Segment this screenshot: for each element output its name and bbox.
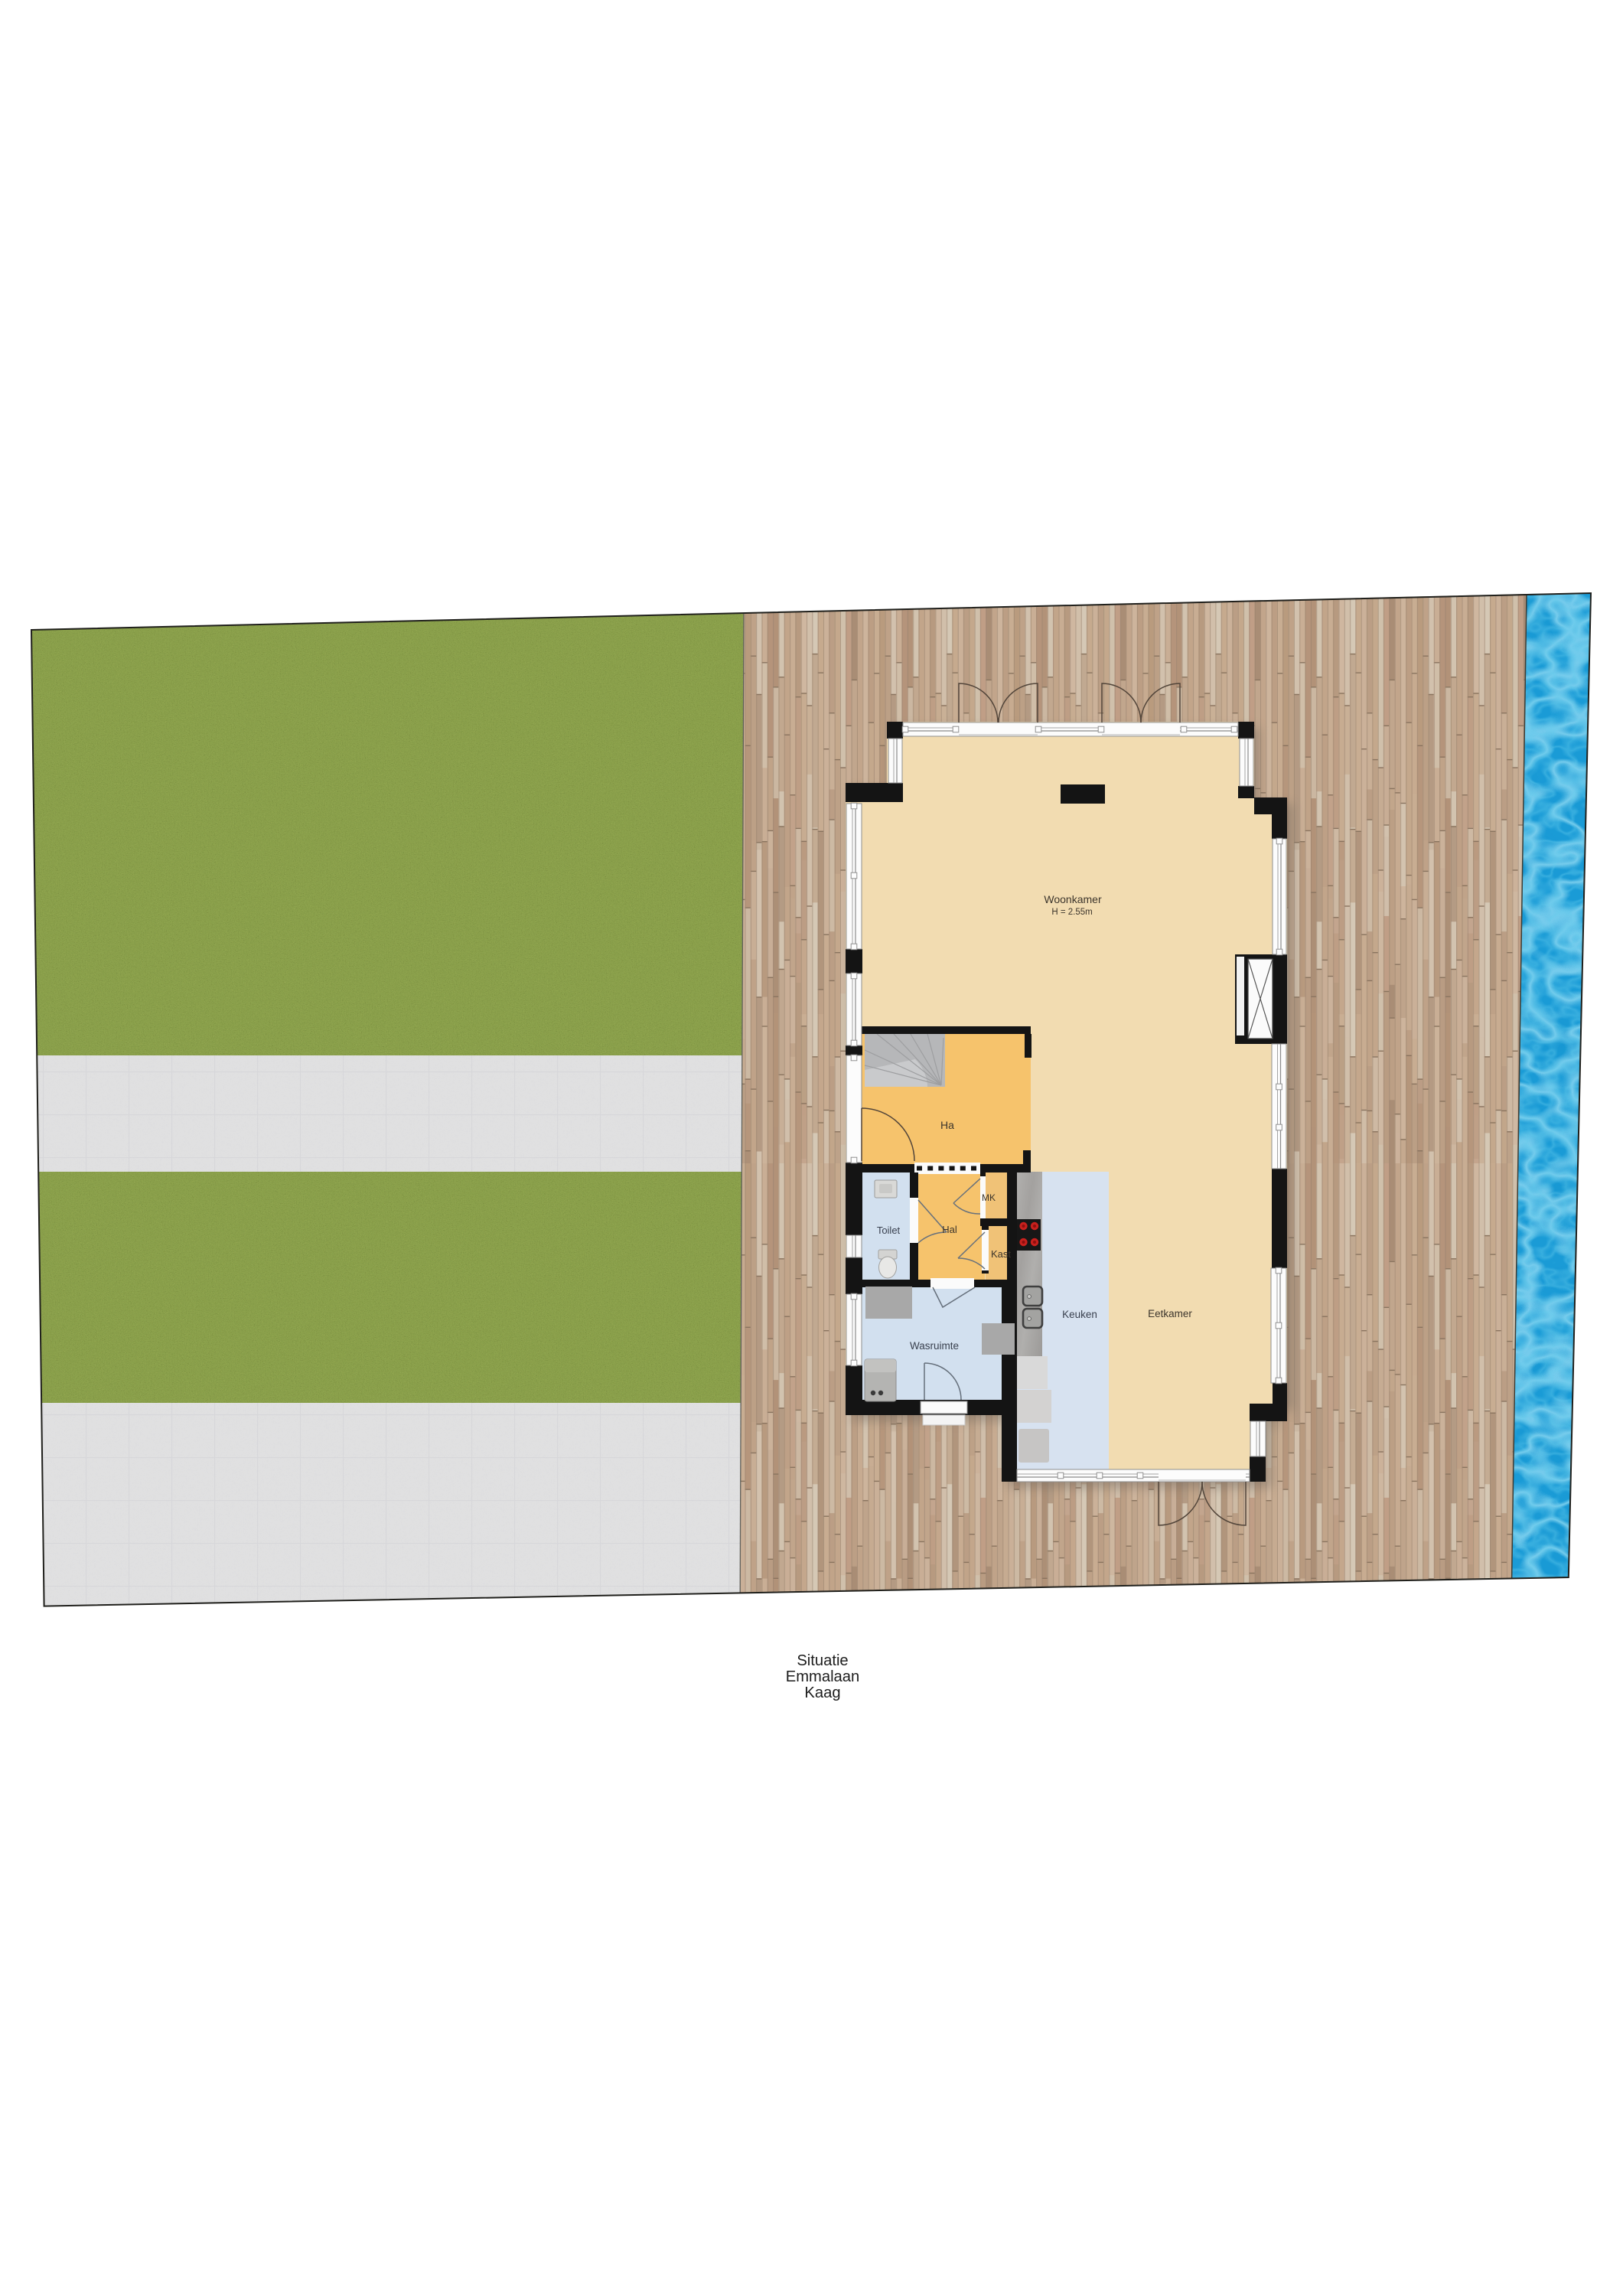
svg-text:H = 2.55m: H = 2.55m bbox=[1051, 908, 1092, 917]
svg-text:Kast: Kast bbox=[991, 1248, 1011, 1260]
svg-text:Emmalaan: Emmalaan bbox=[786, 1668, 860, 1685]
svg-text:Toilet: Toilet bbox=[877, 1225, 901, 1236]
svg-text:Woonkamer: Woonkamer bbox=[1044, 893, 1102, 905]
svg-text:Kaag: Kaag bbox=[804, 1684, 840, 1701]
svg-text:Wasruimte: Wasruimte bbox=[910, 1340, 959, 1352]
svg-text:Situatie: Situatie bbox=[797, 1652, 848, 1669]
svg-text:Hal: Hal bbox=[942, 1224, 957, 1235]
svg-text:Ha: Ha bbox=[940, 1119, 954, 1131]
svg-text:Eetkamer: Eetkamer bbox=[1148, 1308, 1192, 1319]
svg-text:Keuken: Keuken bbox=[1062, 1309, 1097, 1320]
svg-text:MK: MK bbox=[982, 1192, 996, 1203]
